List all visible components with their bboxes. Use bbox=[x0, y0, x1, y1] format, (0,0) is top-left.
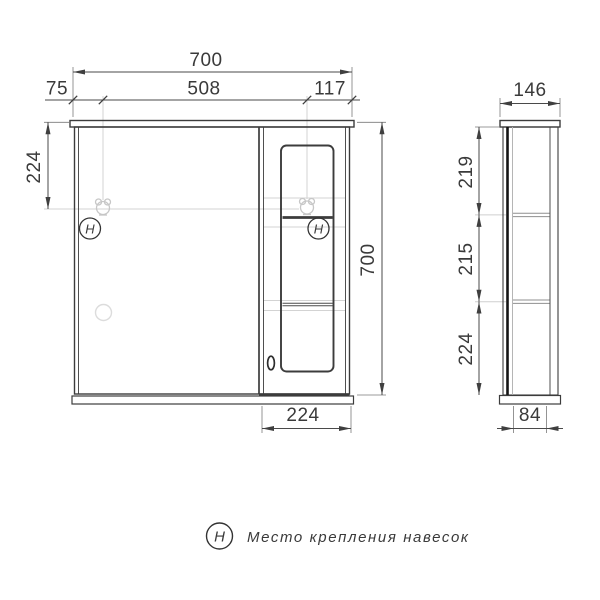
front-door bbox=[268, 146, 334, 372]
dim-total-depth: 146 bbox=[513, 80, 546, 101]
technical-drawing-page: H H bbox=[0, 0, 600, 600]
dim-lower-section: 224 bbox=[456, 332, 477, 365]
legend: H Место крепления навесок bbox=[207, 523, 470, 549]
front-dimension-lines bbox=[45, 72, 382, 429]
dim-hanger-offset-top: 224 bbox=[24, 150, 45, 183]
h-symbol-icon: H bbox=[308, 218, 329, 239]
front-top-cornice bbox=[70, 121, 354, 128]
hanger-bracket-icon bbox=[96, 199, 111, 215]
dim-hanger-offset-right: 117 bbox=[314, 79, 346, 100]
dim-body-depth: 84 bbox=[519, 405, 541, 426]
side-view: 146 219 215 224 84 bbox=[456, 80, 563, 433]
legend-text: Место крепления навесок bbox=[247, 529, 470, 546]
h-symbol-label: H bbox=[85, 222, 95, 237]
drawing-canvas: H H bbox=[0, 0, 600, 600]
side-faint-lines bbox=[475, 215, 506, 302]
hanger-bracket-icon bbox=[300, 199, 315, 215]
side-extension-lines bbox=[475, 98, 560, 433]
dim-hanger-span: 508 bbox=[187, 79, 220, 100]
front-cabinet-body bbox=[70, 121, 354, 405]
front-body-outline bbox=[75, 127, 350, 394]
side-bottom-shelf bbox=[500, 396, 561, 405]
dim-total-height: 700 bbox=[358, 243, 379, 276]
dim-total-width: 700 bbox=[189, 50, 222, 71]
front-extension-lines bbox=[44, 67, 386, 433]
legend-symbol-label: H bbox=[214, 529, 225, 546]
h-symbol-icon: H bbox=[80, 218, 101, 239]
h-symbol-label: H bbox=[314, 222, 324, 237]
side-top-cornice bbox=[500, 121, 560, 128]
dim-door-section-width: 224 bbox=[286, 405, 319, 426]
mirror-fixing-circle bbox=[96, 305, 112, 321]
side-shelf-lines bbox=[513, 213, 550, 303]
front-view: H H bbox=[24, 50, 386, 433]
side-cabinet-body bbox=[500, 121, 561, 405]
door-handle-icon bbox=[268, 356, 275, 370]
dim-hanger-offset-left: 75 bbox=[46, 79, 68, 100]
dim-middle-section: 215 bbox=[456, 242, 477, 275]
front-bottom-shelf bbox=[72, 396, 354, 404]
dim-upper-section: 219 bbox=[456, 155, 477, 188]
h-symbol-icon: H bbox=[207, 523, 233, 549]
